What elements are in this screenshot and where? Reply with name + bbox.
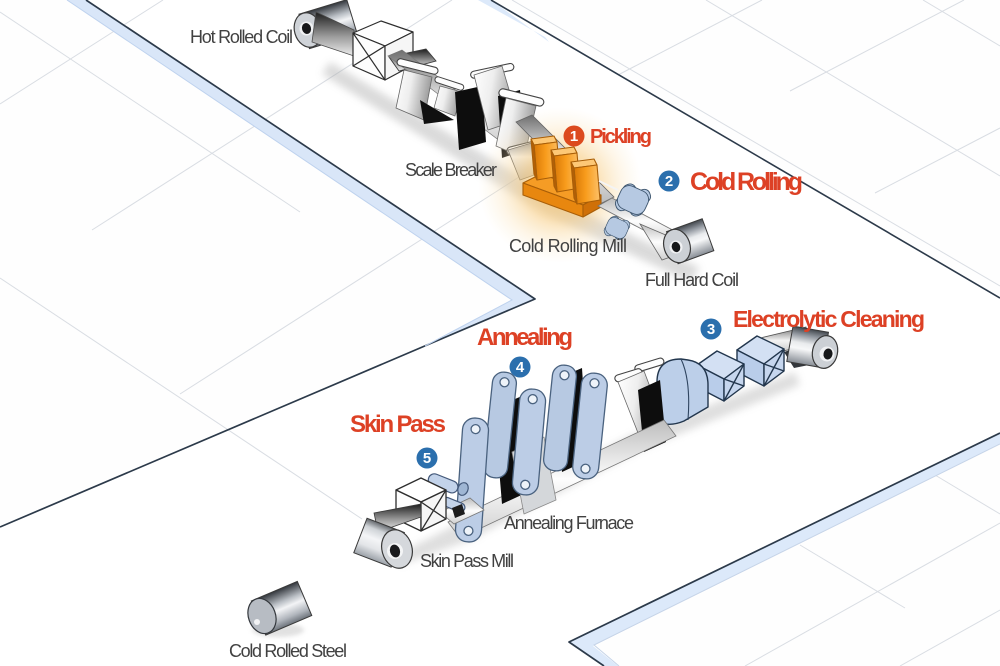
svg-text:Cold Rolled Steel: Cold Rolled Steel — [229, 641, 347, 661]
svg-text:Skin Pass: Skin Pass — [350, 411, 446, 438]
svg-text:2: 2 — [665, 173, 673, 190]
svg-text:Annealing Furnace: Annealing Furnace — [504, 513, 634, 533]
svg-text:1: 1 — [570, 128, 578, 145]
svg-text:4: 4 — [516, 359, 525, 376]
svg-text:5: 5 — [423, 450, 431, 467]
svg-text:Cold Rolling Mill: Cold Rolling Mill — [509, 236, 627, 256]
svg-text:Scale Breaker: Scale Breaker — [405, 160, 497, 180]
svg-text:Full Hard Coil: Full Hard Coil — [645, 270, 739, 290]
svg-text:Hot Rolled Coil: Hot Rolled Coil — [190, 27, 293, 47]
svg-text:Annealing: Annealing — [477, 324, 573, 351]
svg-text:Electrolytic Cleaning: Electrolytic Cleaning — [733, 306, 925, 332]
svg-text:Cold Rolling: Cold Rolling — [690, 168, 803, 196]
svg-text:3: 3 — [707, 321, 715, 338]
svg-text:Pickling: Pickling — [590, 126, 652, 148]
svg-text:Skin Pass Mill: Skin Pass Mill — [420, 551, 514, 571]
